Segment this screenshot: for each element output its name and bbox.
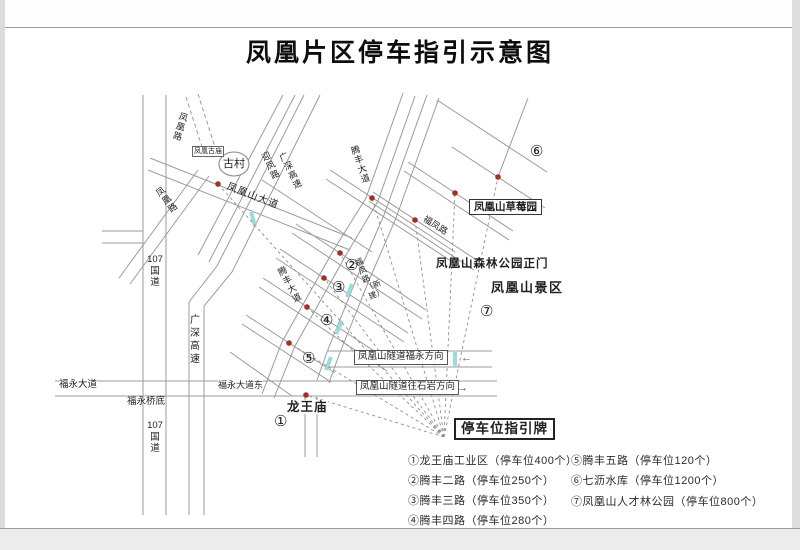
marker-6: ⑥ — [530, 143, 543, 160]
marker-5: ⑤ — [302, 350, 315, 367]
tunnel-fuyong-label: 凤凰山隧道福永方向 — [354, 350, 448, 365]
parking-map-page: 凤凰片区停车指引示意图 — [0, 0, 800, 550]
longwang-temple-label: 龙王庙 — [287, 400, 328, 414]
g107-upper-label: 107 国 道 — [142, 254, 168, 289]
tunnel-tick-marks — [251, 212, 455, 370]
arrow-right: → — [457, 382, 468, 395]
dashed-road — [186, 94, 216, 153]
forest-park-gate-label: 凤凰山森林公园正门 — [436, 258, 549, 271]
legend-item: ②腾丰二路（停车位250个） — [408, 472, 554, 488]
fuyong-avenue-east-label: 福永大道东 — [218, 380, 263, 390]
fuyong-bridge-label: 福永桥底 — [127, 397, 165, 408]
guangshen-expressway-lower-label: 广深高速 — [190, 314, 202, 366]
marker-7: ⑦ — [480, 303, 493, 320]
parking-sign-label: 停车位指引牌 — [454, 418, 555, 440]
legend-item: ⑤腾丰五路（停车位120个） — [571, 452, 717, 468]
legend-item: ①龙王庙工业区（停车位400个） — [408, 452, 577, 468]
marker-4: ④ — [320, 312, 333, 329]
legend-item: ③腾丰三路（停车位350个） — [408, 492, 554, 508]
legend-item: ⑦凤凰山人才林公园（停车位800个） — [571, 493, 763, 509]
legend-item: ④腾丰四路（停车位280个） — [408, 512, 554, 528]
marker-2: ② — [345, 257, 358, 274]
strawberry-park-label: 凤凰山草莓园 — [469, 199, 542, 215]
marker-3: ③ — [332, 279, 345, 296]
arrow-left: ← — [461, 352, 472, 365]
fenghuang-gumiao-label: 凤凰古庙 — [192, 146, 224, 157]
scenic-area-label: 凤凰山景区 — [491, 281, 564, 296]
g107-lower-label: 107 国 道 — [142, 420, 168, 455]
legend-item: ⑥七沥水库（停车位1200个） — [571, 472, 724, 488]
gucun-label: 古村 — [222, 158, 246, 171]
page-bottom-rule — [0, 528, 800, 550]
tunnel-shiyan-label: 凤凰山隧道往石岩方向 — [356, 380, 459, 395]
fuyong-avenue-label: 福永大道 — [59, 380, 97, 391]
marker-1: ① — [274, 413, 287, 430]
